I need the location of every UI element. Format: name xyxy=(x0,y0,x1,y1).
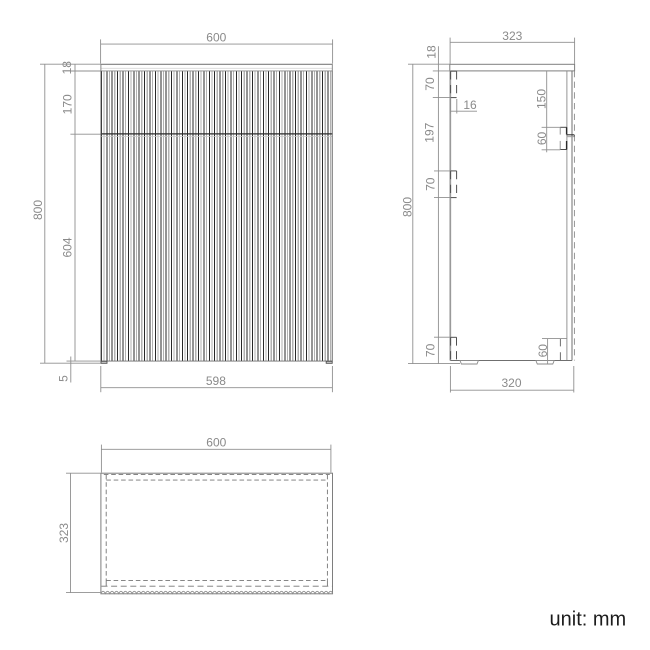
svg-text:16: 16 xyxy=(463,98,477,112)
svg-text:800: 800 xyxy=(31,200,45,220)
svg-text:600: 600 xyxy=(206,436,226,450)
svg-text:197: 197 xyxy=(422,122,436,142)
svg-text:320: 320 xyxy=(501,376,521,390)
svg-text:150: 150 xyxy=(535,89,549,109)
svg-text:unit: mm: unit: mm xyxy=(550,609,627,631)
svg-text:18: 18 xyxy=(60,61,74,75)
svg-text:598: 598 xyxy=(206,374,226,388)
svg-text:170: 170 xyxy=(61,94,75,114)
svg-text:70: 70 xyxy=(424,177,438,191)
svg-text:800: 800 xyxy=(400,197,414,217)
svg-text:323: 323 xyxy=(57,523,71,543)
svg-text:600: 600 xyxy=(206,31,226,45)
svg-text:70: 70 xyxy=(424,343,438,357)
svg-text:604: 604 xyxy=(61,237,75,257)
svg-text:70: 70 xyxy=(423,77,437,91)
svg-text:60: 60 xyxy=(536,344,550,358)
svg-text:18: 18 xyxy=(424,45,438,59)
svg-text:60: 60 xyxy=(535,132,549,146)
svg-text:323: 323 xyxy=(502,29,522,43)
svg-text:5: 5 xyxy=(56,375,70,382)
